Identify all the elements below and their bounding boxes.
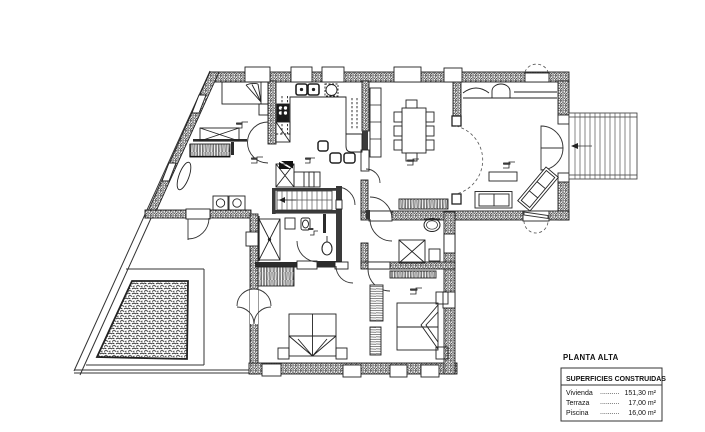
svg-text:16,00 m²: 16,00 m² xyxy=(628,410,656,417)
svg-text:PLANTA ALTA: PLANTA ALTA xyxy=(563,353,619,362)
svg-text:SUPERFICIES CONSTRUIDAS: SUPERFICIES CONSTRUIDAS xyxy=(566,376,666,383)
svg-text:151,30 m²: 151,30 m² xyxy=(624,390,656,397)
svg-text:..........: .......... xyxy=(600,389,620,396)
svg-text:Vivienda: Vivienda xyxy=(566,390,593,397)
svg-text:..........: .......... xyxy=(600,399,620,406)
svg-text:17,00 m²: 17,00 m² xyxy=(628,400,656,407)
svg-text:Piscina: Piscina xyxy=(566,410,589,417)
svg-text:..........: .......... xyxy=(600,409,620,416)
svg-text:Terraza: Terraza xyxy=(566,400,589,407)
